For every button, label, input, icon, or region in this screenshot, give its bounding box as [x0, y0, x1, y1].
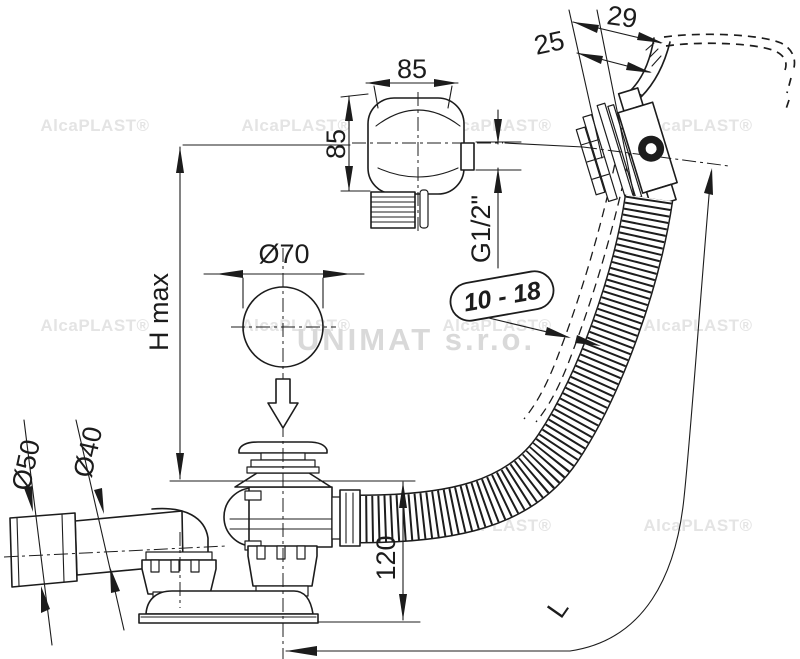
depth-120-label: 120	[371, 535, 401, 580]
rim-offset-inner-label: 25	[531, 25, 567, 61]
drain-assembly	[10, 487, 360, 623]
hose-union-nut	[340, 490, 360, 546]
siphon-base	[146, 591, 313, 614]
hose-length-label: L	[541, 594, 574, 624]
brand-watermark: AlcaPLAST®	[40, 316, 149, 335]
knob-height-label: 85	[321, 129, 351, 159]
knob-body	[368, 98, 464, 194]
dimension-plug-diameter: Ø70	[204, 239, 364, 308]
brand-watermark: AlcaPLAST®	[40, 116, 149, 135]
brand-watermark: AlcaPLAST®	[643, 516, 752, 535]
rim-offset-outer-label: 29	[605, 0, 639, 34]
drawing-canvas: AlcaPLAST® AlcaPLAST® AlcaPLAST® AlcaPLA…	[0, 0, 800, 659]
thread-size-label: G1/2"	[466, 195, 496, 263]
tub-rim	[629, 34, 795, 112]
outlet-diameter-label: Ø50	[6, 437, 46, 493]
technical-drawing-bath-waste-overflow: AlcaPLAST® AlcaPLAST® AlcaPLAST® AlcaPLA…	[0, 0, 800, 659]
base-plate	[139, 614, 318, 623]
pipe-diameter-label: Ø40	[68, 424, 109, 480]
control-knob	[368, 98, 474, 228]
knob-side-outlet	[461, 143, 474, 170]
insert-direction-arrow	[268, 379, 298, 428]
knob-cable-rod	[420, 190, 428, 228]
plug-diameter-label: Ø70	[258, 239, 309, 269]
knob-width-label: 85	[397, 54, 427, 84]
h-max-label: H max	[144, 273, 174, 352]
overflow-hose	[359, 198, 649, 519]
